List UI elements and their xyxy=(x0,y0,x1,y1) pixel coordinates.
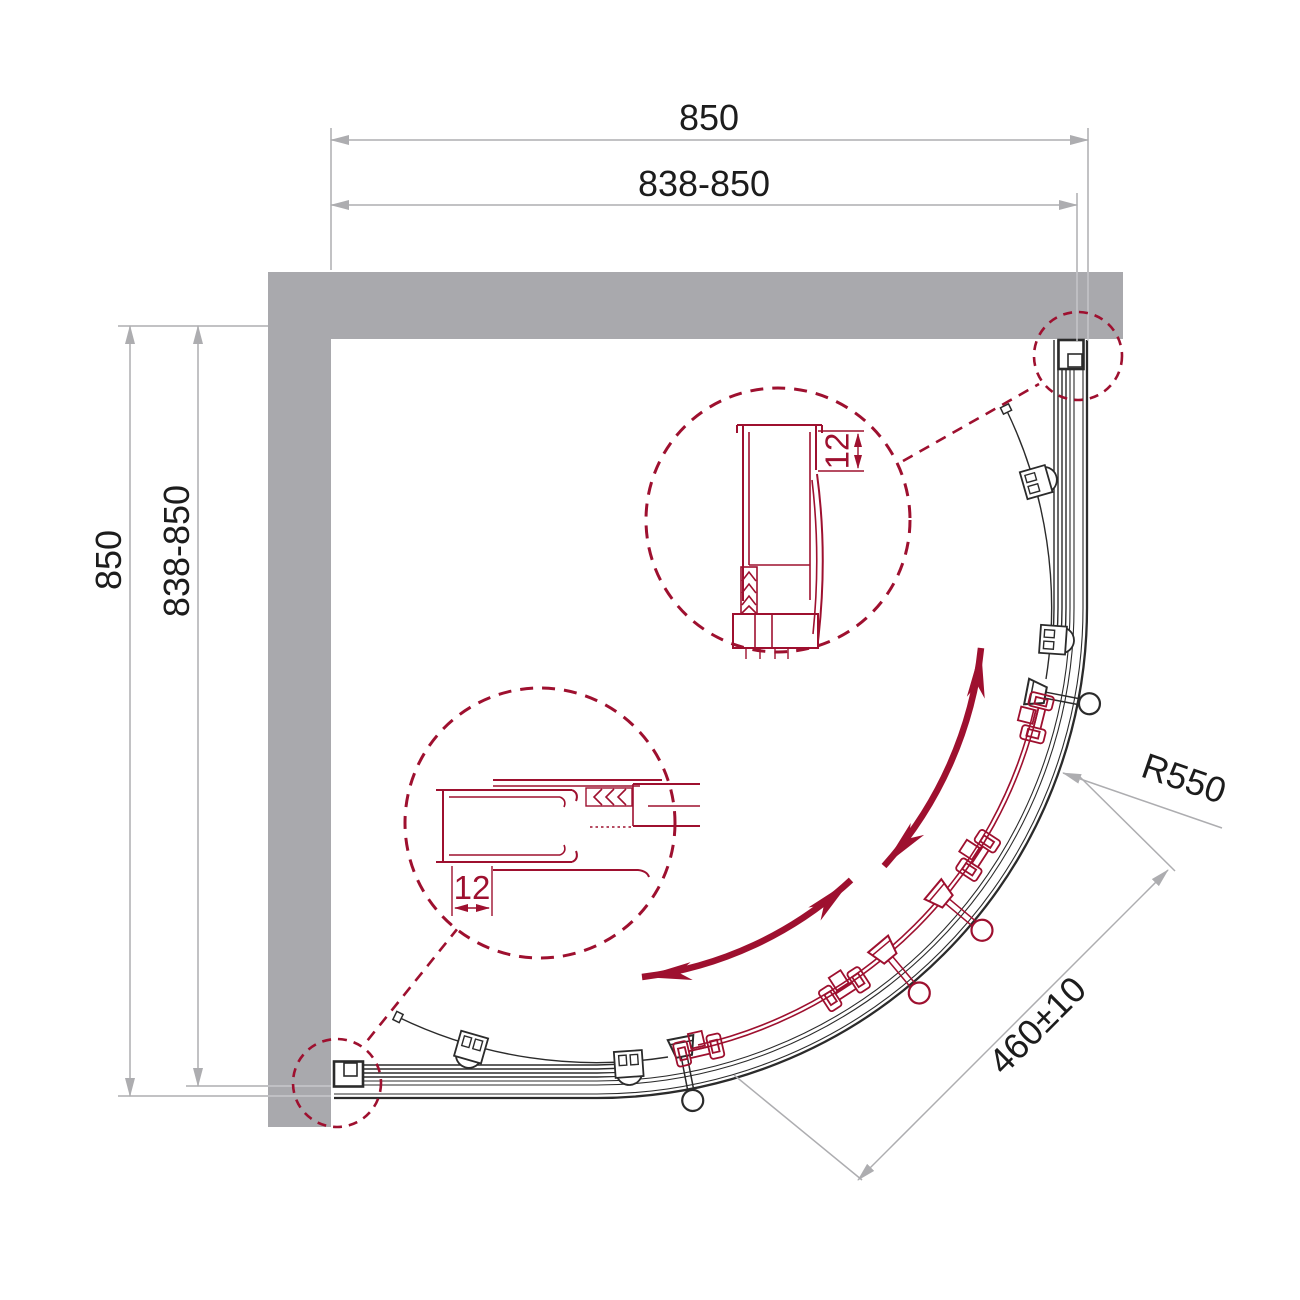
detail-bottom-label: 12 xyxy=(454,869,491,906)
track-rail-inner xyxy=(334,340,1070,1081)
glass-end-cap xyxy=(1000,404,1011,414)
dim-label-top-range: 838-850 xyxy=(638,163,770,204)
detail-top-label: 12 xyxy=(819,433,856,470)
sliding-doors-closed xyxy=(671,690,1054,1067)
dim-label-left-total: 850 xyxy=(88,530,129,590)
wall-profile-top xyxy=(1059,340,1084,369)
wall-profile-bottom xyxy=(334,1062,363,1087)
glass-clamp xyxy=(614,1050,644,1086)
glass-end-cap xyxy=(393,1011,403,1022)
shower-enclosure-technical-drawing: 850 838-850 850 838-850 R550 460±10 xyxy=(0,0,1300,1300)
slide-arrow-upper xyxy=(884,648,981,866)
wall-left xyxy=(268,272,331,1127)
detail-circle-top xyxy=(646,388,910,652)
door-glass-arc-outer xyxy=(699,710,1038,1049)
dim-label-radius: R550 xyxy=(1137,745,1232,812)
dim-label-left-range: 838-850 xyxy=(156,485,197,617)
detail-circle-bottom xyxy=(405,688,675,958)
slide-arrow-lower xyxy=(642,880,851,977)
door-motion-arrows xyxy=(642,648,981,977)
drawing-canvas: 850 838-850 850 838-850 R550 460±10 xyxy=(0,0,1300,1300)
fixed-panel-top xyxy=(1052,340,1066,649)
detail-leader-bottom xyxy=(363,928,458,1046)
wall-top xyxy=(268,272,1123,339)
dim-label-entry: 460±10 xyxy=(980,968,1094,1082)
detail-leader-top xyxy=(903,384,1039,461)
door-glass-arc-inner xyxy=(698,709,1034,1045)
outer-profile-arc xyxy=(334,340,1087,1098)
glass-clamp xyxy=(1039,625,1075,655)
track-rail-outer xyxy=(334,340,1074,1085)
dim-label-top-total: 850 xyxy=(679,97,739,138)
walls xyxy=(268,272,1123,1127)
